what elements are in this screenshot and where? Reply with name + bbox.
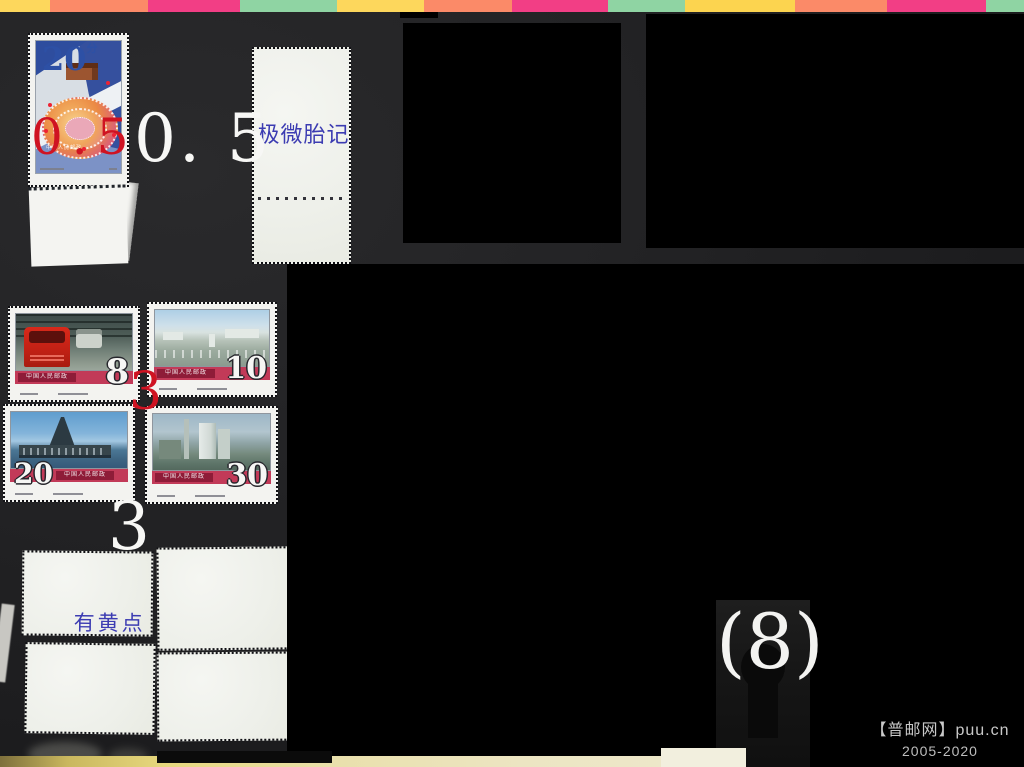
price-label-white: 0. 5 bbox=[134, 106, 272, 172]
strip-segment bbox=[148, 0, 240, 12]
strip-segment bbox=[50, 0, 148, 12]
price-overlay-red: 0.5 bbox=[31, 112, 138, 162]
caption-microtext bbox=[157, 495, 175, 497]
plant-building bbox=[159, 440, 181, 459]
strip-segment bbox=[795, 0, 887, 12]
country-text: 中国人民邮政 bbox=[56, 471, 114, 480]
film-stamp-denomination: 20分 bbox=[42, 43, 98, 75]
white-truck bbox=[76, 329, 102, 348]
caption-microtext bbox=[58, 393, 88, 395]
stamp-back-4 bbox=[157, 652, 295, 742]
denomination-20: 20 bbox=[14, 460, 53, 488]
stamp-back-2 bbox=[156, 546, 293, 650]
caption-microtext bbox=[197, 388, 227, 390]
stamp-count-label: (8) bbox=[716, 596, 810, 687]
price-label-white-block: 3 bbox=[108, 494, 150, 560]
stamp-back-3 bbox=[24, 642, 155, 735]
strip-segment bbox=[337, 0, 424, 12]
stamp-30fen: 中国人民邮政 30 bbox=[145, 406, 278, 504]
chimney bbox=[184, 419, 189, 459]
catalog-microtext bbox=[40, 168, 64, 170]
monument bbox=[209, 334, 215, 347]
album-page-edge bbox=[0, 756, 746, 767]
watermark-years: 2005-2020 bbox=[856, 743, 1024, 759]
country-text: 中国人民邮政 bbox=[18, 373, 76, 382]
caption-microtext bbox=[20, 393, 38, 395]
photo-light-streak bbox=[0, 603, 15, 682]
side-tower bbox=[218, 429, 230, 459]
stamp-10fen: 中国人民邮政 10 bbox=[147, 302, 277, 397]
caption-microtext bbox=[53, 493, 83, 495]
strip-segment bbox=[887, 0, 986, 12]
year-microtext bbox=[109, 168, 117, 170]
watermark-site-name: 【普邮网】puu.cn bbox=[856, 716, 1024, 740]
denomination-30: 30 bbox=[226, 461, 268, 491]
site-watermark: 【普邮网】puu.cn 2005-2020 bbox=[856, 716, 1024, 759]
denomination-8: 8 bbox=[105, 355, 129, 389]
drilling-derrick bbox=[49, 417, 75, 447]
strip-segment bbox=[685, 0, 795, 12]
album-page-edge-bright bbox=[661, 748, 746, 767]
strip-segment bbox=[240, 0, 337, 12]
strip-segment bbox=[986, 0, 1024, 12]
strip-segment bbox=[424, 0, 512, 12]
black-mask-main bbox=[287, 264, 1024, 767]
perforation-line bbox=[258, 197, 345, 200]
black-mask-top-a bbox=[403, 23, 621, 243]
country-text: 中国人民邮政 bbox=[157, 369, 215, 378]
caption-microtext bbox=[15, 493, 33, 495]
price-overlay-red-block: 3 bbox=[129, 366, 162, 418]
top-color-strip bbox=[0, 0, 1024, 12]
dark-bar-over-edge bbox=[157, 751, 332, 763]
white-tower bbox=[199, 423, 216, 459]
film-stamp-selvage bbox=[29, 184, 129, 266]
red-stars bbox=[48, 103, 52, 107]
black-mask-top-b bbox=[646, 14, 1024, 248]
condition-note-yellow-spots: 有黄点 bbox=[74, 607, 146, 638]
building bbox=[163, 332, 183, 340]
strip-segment bbox=[0, 0, 50, 12]
denomination-10: 10 bbox=[225, 354, 267, 384]
country-text: 中国人民邮政 bbox=[155, 473, 213, 482]
strip-segment bbox=[608, 0, 685, 12]
stamp-8fen: 中国人民邮政 8 bbox=[8, 306, 140, 402]
count-column: (8) bbox=[716, 600, 810, 767]
caption-microtext bbox=[195, 495, 225, 497]
strip-segment bbox=[512, 0, 608, 12]
building bbox=[225, 329, 259, 338]
red-truck bbox=[24, 327, 70, 367]
stamp-photo-canvas: 20分 中国人民邮政 0.5 0. 5 极微胎记 中国人民邮政 8 bbox=[0, 0, 1024, 767]
